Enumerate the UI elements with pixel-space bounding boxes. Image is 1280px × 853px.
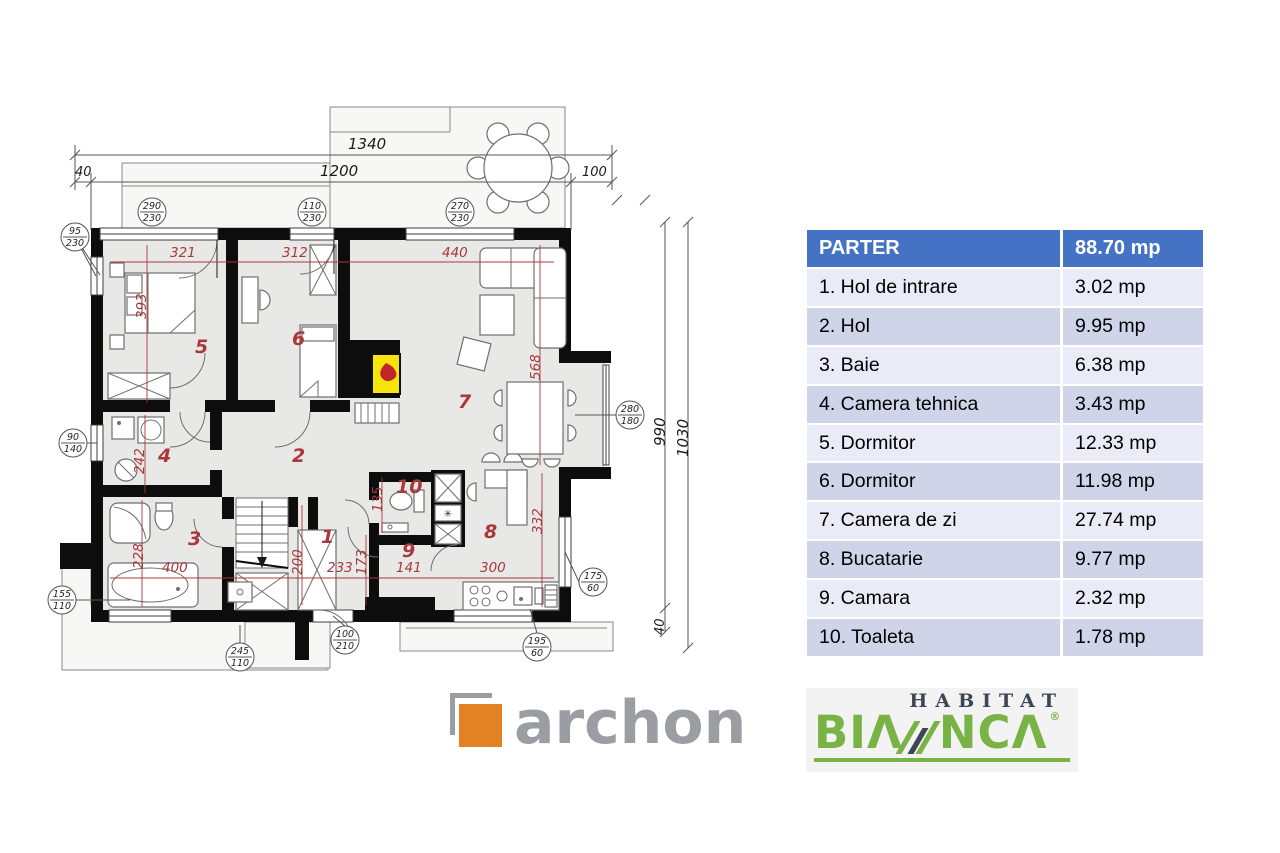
- bianca-slashes-icon: [905, 720, 935, 754]
- svg-text:568: 568: [528, 354, 544, 380]
- table-header-title: PARTER: [807, 237, 1060, 260]
- svg-text:155: 155: [53, 589, 71, 600]
- table-row: 7. Camera de zi 27.74 mp: [807, 502, 1203, 541]
- table-row: 10. Toaleta 1.78 mp: [807, 619, 1203, 658]
- svg-text:40: 40: [653, 618, 668, 635]
- svg-text:233: 233: [327, 560, 353, 576]
- svg-text:393: 393: [134, 293, 150, 319]
- svg-text:332: 332: [530, 508, 546, 534]
- svg-text:173: 173: [354, 549, 370, 575]
- window-callout: 290 230: [138, 198, 166, 226]
- room-label: 10. Toaleta: [807, 626, 1060, 649]
- table-row: 8. Bucatarie 9.77 mp: [807, 541, 1203, 580]
- room-area: 2.32 mp: [1060, 580, 1203, 617]
- svg-text:440: 440: [442, 245, 468, 261]
- svg-text:4: 4: [157, 445, 171, 467]
- room-area: 9.77 mp: [1060, 541, 1203, 578]
- svg-text:60: 60: [531, 648, 543, 659]
- kitchen-column: ✳: [435, 474, 461, 544]
- svg-text:100: 100: [582, 165, 607, 180]
- archon-logo-text: archon: [514, 696, 746, 751]
- room-area: 12.33 mp: [1060, 425, 1203, 462]
- room-area: 1.78 mp: [1060, 619, 1203, 656]
- table-row: 9. Camara 2.32 mp: [807, 580, 1203, 619]
- svg-text:280: 280: [621, 404, 639, 415]
- svg-text:200: 200: [290, 549, 306, 575]
- room-area: 3.02 mp: [1060, 269, 1203, 306]
- svg-text:1: 1: [321, 526, 334, 548]
- bianca-wordmark: BI Λ NC Λ ®: [814, 712, 1070, 755]
- svg-text:8: 8: [484, 521, 497, 543]
- svg-text:180: 180: [621, 416, 639, 427]
- svg-text:321: 321: [170, 245, 196, 261]
- page: ✳: [0, 0, 1280, 853]
- table-header-total: 88.70 mp: [1060, 230, 1203, 267]
- svg-text:9: 9: [402, 540, 415, 562]
- svg-text:6: 6: [292, 328, 305, 350]
- fridge-icon: ✳: [444, 509, 452, 520]
- room-label: 4. Camera tehnica: [807, 393, 1060, 416]
- svg-text:210: 210: [336, 641, 354, 652]
- svg-text:245: 245: [231, 646, 249, 657]
- entrance-porch: [245, 622, 330, 668]
- bianca-nc: NC: [939, 712, 1012, 755]
- svg-text:400: 400: [162, 560, 188, 576]
- svg-text:990: 990: [651, 417, 669, 446]
- room-label: 8. Bucatarie: [807, 548, 1060, 571]
- svg-text:230: 230: [451, 213, 469, 224]
- room-label: 2. Hol: [807, 315, 1060, 338]
- svg-text:110: 110: [53, 601, 71, 612]
- svg-text:110: 110: [231, 658, 249, 669]
- svg-text:7: 7: [458, 391, 472, 413]
- svg-text:228: 228: [131, 543, 147, 569]
- room-label: 1. Hol de intrare: [807, 276, 1060, 299]
- svg-text:242: 242: [132, 448, 148, 474]
- svg-text:5: 5: [195, 336, 208, 358]
- svg-text:175: 175: [584, 571, 602, 582]
- svg-text:230: 230: [303, 213, 321, 224]
- svg-text:230: 230: [66, 238, 84, 249]
- svg-text:2: 2: [292, 445, 305, 467]
- room-label: 9. Camara: [807, 587, 1060, 610]
- table-header: PARTER 88.70 mp: [807, 230, 1203, 269]
- room-area: 27.74 mp: [1060, 502, 1203, 539]
- table-row: 4. Camera tehnica 3.43 mp: [807, 386, 1203, 425]
- svg-text:110: 110: [303, 201, 321, 212]
- svg-text:300: 300: [480, 560, 506, 576]
- room-area: 6.38 mp: [1060, 347, 1203, 384]
- registered-icon: ®: [1049, 712, 1061, 722]
- archon-logo: archon: [450, 693, 746, 751]
- table-row: 5. Dormitor 12.33 mp: [807, 425, 1203, 464]
- svg-text:312: 312: [282, 245, 308, 261]
- wardrobe: [108, 373, 170, 399]
- svg-text:270: 270: [451, 201, 469, 212]
- room-area: 3.43 mp: [1060, 386, 1203, 423]
- svg-text:95: 95: [69, 226, 81, 237]
- bianca-bi: BI: [814, 712, 867, 755]
- table-row: 3. Baie 6.38 mp: [807, 347, 1203, 386]
- svg-text:100: 100: [336, 629, 354, 640]
- window-callout: 110 230: [298, 198, 326, 226]
- room-label: 7. Camera de zi: [807, 509, 1060, 532]
- svg-text:3: 3: [188, 528, 201, 550]
- area-table: PARTER 88.70 mp 1. Hol de intrare 3.02 m…: [807, 230, 1203, 658]
- room-area: 9.95 mp: [1060, 308, 1203, 345]
- svg-text:60: 60: [587, 583, 599, 594]
- table-row: 6. Dormitor 11.98 mp: [807, 463, 1203, 502]
- habitat-bianca-logo: HABITAT BI Λ NC Λ ®: [806, 688, 1078, 772]
- table-row: 2. Hol 9.95 mp: [807, 308, 1203, 347]
- archon-logo-icon: [450, 693, 502, 751]
- svg-text:140: 140: [64, 444, 82, 455]
- floor-plan: ✳: [30, 85, 730, 685]
- table-row: 1. Hol de intrare 3.02 mp: [807, 269, 1203, 308]
- svg-text:40: 40: [75, 165, 92, 180]
- room-area: 11.98 mp: [1060, 463, 1203, 500]
- svg-text:1200: 1200: [320, 162, 358, 180]
- svg-text:90: 90: [67, 432, 79, 443]
- room-label: 3. Baie: [807, 354, 1060, 377]
- window-callout: 270 230: [446, 198, 474, 226]
- svg-text:290: 290: [143, 201, 161, 212]
- room-label: 6. Dormitor: [807, 470, 1060, 493]
- svg-text:141: 141: [396, 560, 422, 576]
- svg-text:135: 135: [370, 486, 386, 512]
- svg-text:1340: 1340: [348, 135, 386, 153]
- svg-text:1030: 1030: [674, 419, 692, 457]
- svg-text:195: 195: [528, 636, 546, 647]
- bianca-a: Λ: [1012, 712, 1048, 755]
- terrace-kitchen: [400, 622, 613, 651]
- svg-text:230: 230: [143, 213, 161, 224]
- svg-text:10: 10: [396, 476, 422, 498]
- room-label: 5. Dormitor: [807, 432, 1060, 455]
